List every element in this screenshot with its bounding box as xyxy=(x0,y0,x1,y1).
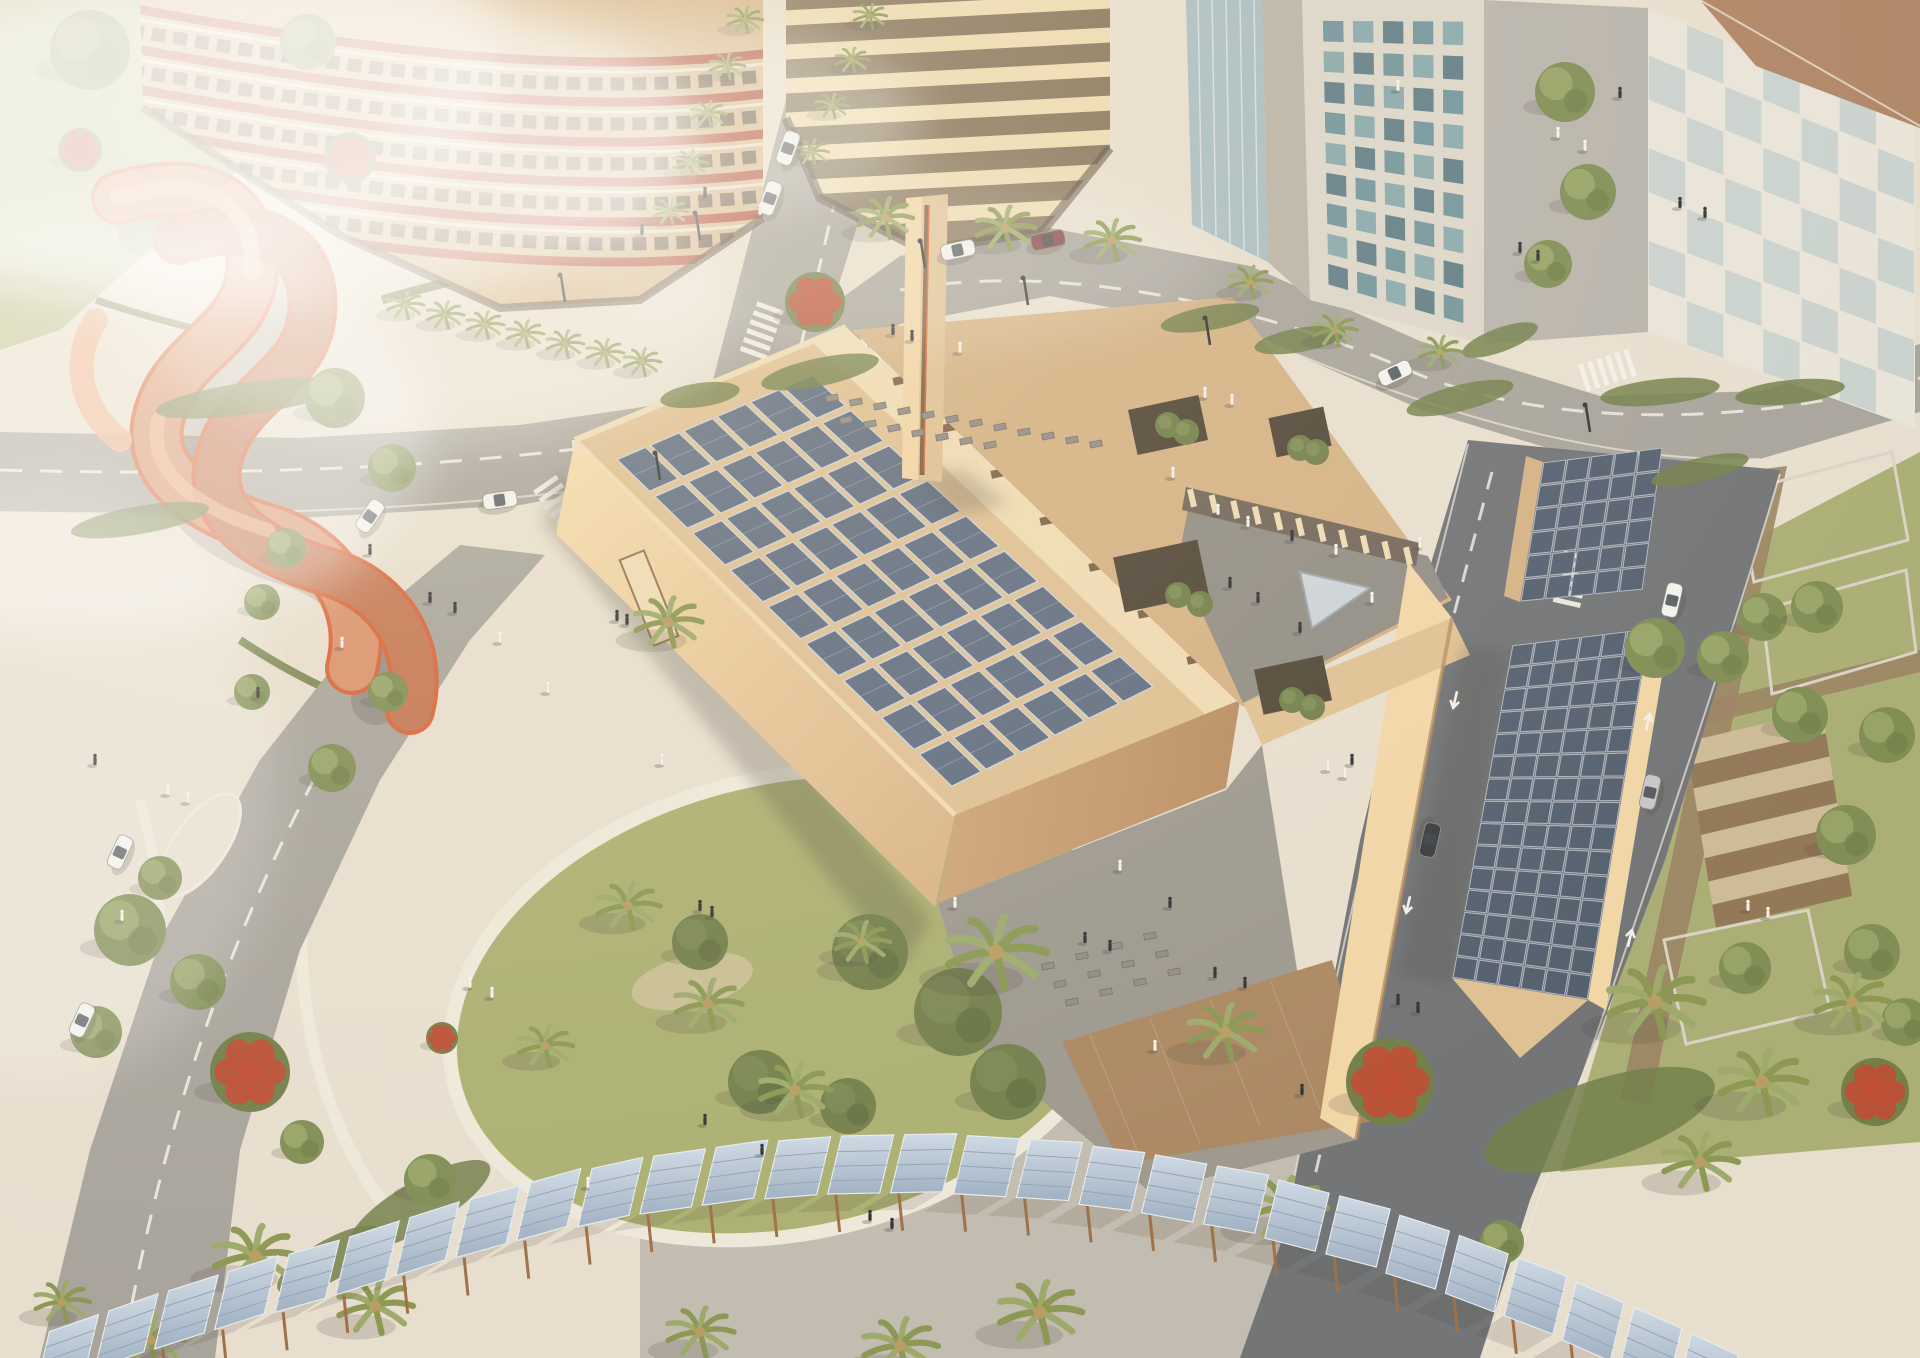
canopy-upper-panels xyxy=(1521,448,1662,601)
tree-alley xyxy=(1484,0,1648,344)
glass-mid-rise xyxy=(1186,0,1268,262)
city-aerial-render xyxy=(0,0,1920,1358)
aerial-render-stage xyxy=(0,0,1920,1358)
